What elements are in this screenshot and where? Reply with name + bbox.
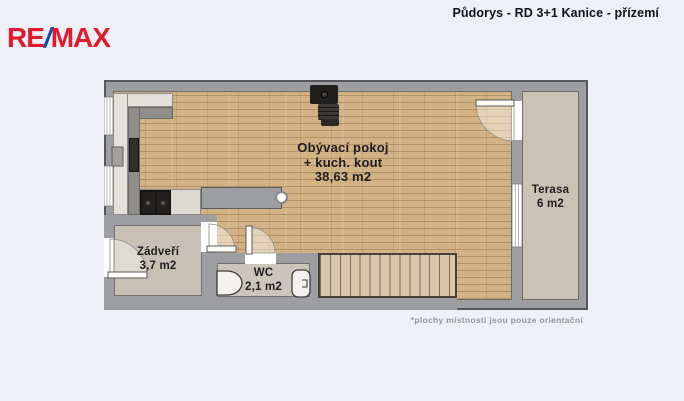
wc-door-opening xyxy=(245,253,276,264)
label-hall: Zádveří 3,7 m2 xyxy=(114,245,202,273)
window-icon xyxy=(104,166,113,206)
room-name-line2: + kuch. kout xyxy=(248,156,438,171)
column xyxy=(276,192,287,203)
door-arc xyxy=(476,103,514,141)
label-terrace: Terasa 6 m2 xyxy=(522,183,579,211)
door-arc xyxy=(249,227,275,253)
room-area: 3,7 m2 xyxy=(114,259,202,273)
floor-plan-page: RE/MAX Půdorys - RD 3+1 Kanice - přízemí xyxy=(0,0,684,401)
logo-re: RE xyxy=(7,22,44,53)
room-name: Zádveří xyxy=(114,245,202,259)
room-name: Terasa xyxy=(522,183,579,197)
page-title: Půdorys - RD 3+1 Kanice - přízemí xyxy=(453,6,660,20)
wall-pillar xyxy=(112,147,123,166)
label-wc: WC 2,1 m2 xyxy=(217,266,310,294)
room-area: 2,1 m2 xyxy=(217,280,310,294)
window-icon xyxy=(512,184,522,247)
disclaimer-note: *plochy místností jsou pouze orientační xyxy=(411,315,583,325)
plan-symbols xyxy=(104,80,588,310)
room-name: Obývací pokoj xyxy=(248,141,438,156)
floor-plan: Obývací pokoj + kuch. kout 38,63 m2 Tera… xyxy=(104,80,588,310)
room-name: WC xyxy=(217,266,310,280)
remax-logo: RE/MAX xyxy=(7,24,110,52)
door-leaf xyxy=(476,100,514,106)
door-leaf xyxy=(246,226,252,254)
room-area: 38,63 m2 xyxy=(248,170,438,185)
label-living-kitchen: Obývací pokoj + kuch. kout 38,63 m2 xyxy=(248,141,438,185)
logo-slash: / xyxy=(44,22,51,53)
room-area: 6 m2 xyxy=(522,197,579,211)
door-leaf xyxy=(207,246,236,252)
window-icon xyxy=(104,97,113,135)
logo-max: MAX xyxy=(51,22,110,53)
